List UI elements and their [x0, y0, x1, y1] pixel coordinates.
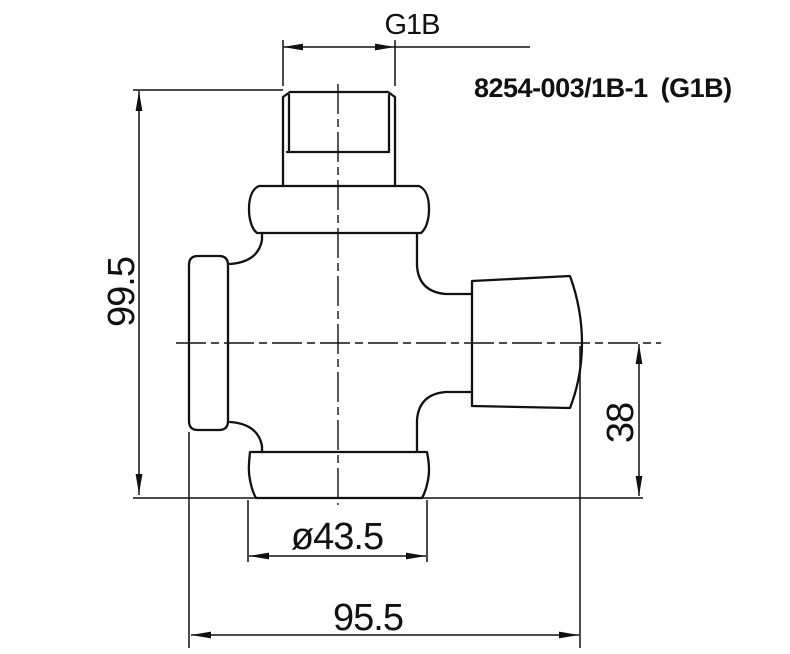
dim-thread-arrow-right [375, 44, 395, 51]
valve-technical-drawing: G1B 99.5 38 ø43.5 95.5 8254-003/1B-1 (G1… [0, 0, 790, 654]
label-overall-width: 95.5 [333, 597, 403, 639]
label-nut-diameter: ø43.5 [291, 516, 383, 558]
body-right-lower-edge [417, 392, 472, 452]
label-thread-size: G1B [384, 9, 439, 41]
label-overall-height: 99.5 [101, 257, 143, 327]
dim-offset: 38 [600, 344, 642, 496]
dim-offset-arrow-bottom [636, 476, 643, 496]
dim-width-arrow-right [559, 632, 579, 639]
drawing-sheet: G1B 99.5 38 ø43.5 95.5 8254-003/1B-1 (G1… [0, 0, 790, 654]
body-right-upper-edge [417, 233, 472, 294]
centerlines [176, 84, 661, 505]
dim-diameter: ø43.5 [248, 500, 427, 562]
dim-width-arrow-left [191, 632, 211, 639]
dim-diameter-arrow-left [249, 553, 269, 560]
part-number: 8254-003/1B-1 (G1B) [474, 73, 732, 103]
label-outlet-offset: 38 [600, 403, 642, 443]
bottom-nut [249, 452, 429, 498]
top-nut [249, 186, 429, 233]
body-left-lower-edge [230, 422, 262, 452]
thread-port-outline [283, 92, 395, 186]
valve-body-outline [189, 92, 582, 498]
body-left-upper-edge [230, 233, 262, 264]
dim-height-arrow-bottom [136, 474, 143, 494]
dim-offset-arrow-top [636, 344, 643, 364]
dim-height-arrow-top [136, 91, 143, 111]
dim-thread-arrow-left [283, 44, 303, 51]
dim-diameter-arrow-right [406, 553, 426, 560]
right-knob [472, 276, 582, 408]
